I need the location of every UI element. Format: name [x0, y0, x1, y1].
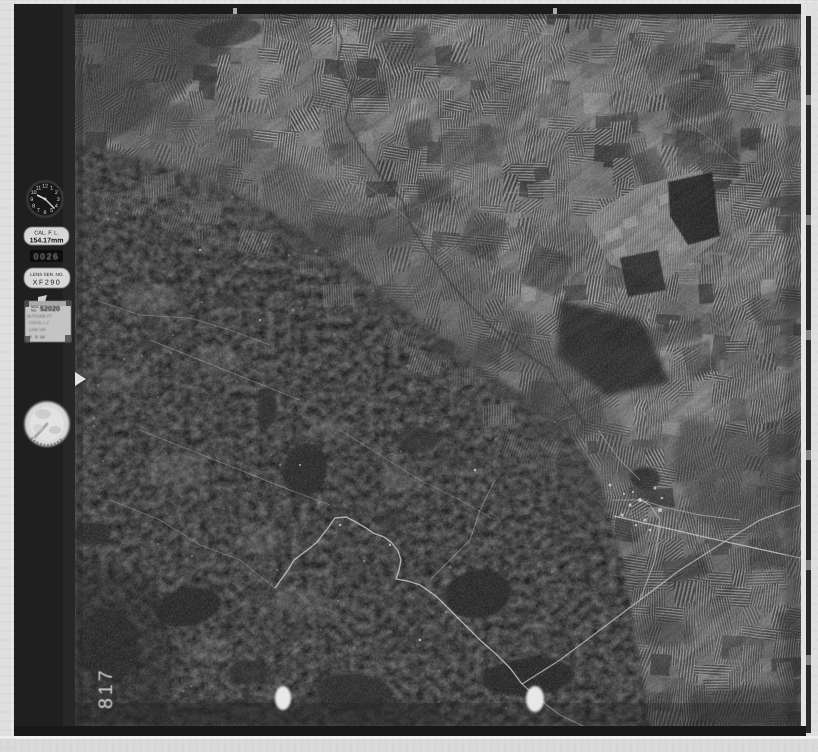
svg-text:154.17mm: 154.17mm [30, 238, 64, 245]
svg-text:8: 8 [32, 203, 35, 209]
svg-text:4: 4 [55, 203, 58, 209]
svg-text:5: 5 [50, 208, 53, 214]
svg-text:1: 1 [50, 185, 53, 191]
svg-text:FOCAL L 2: FOCAL L 2 [29, 320, 49, 325]
svg-text:ALTITUDE FT: ALTITUDE FT [27, 314, 53, 319]
svg-text:9 . 9. 54: 9 . 9. 54 [29, 335, 45, 340]
svg-text:12: 12 [42, 184, 48, 190]
svg-text:LENS SER. NO.: LENS SER. NO. [30, 272, 63, 277]
svg-text:3: 3 [57, 197, 60, 203]
svg-text:NO.: NO. [31, 308, 37, 312]
svg-text:CAL. F. L.: CAL. F. L. [34, 231, 59, 237]
svg-text:9: 9 [30, 197, 33, 203]
svg-text:52020: 52020 [40, 304, 60, 313]
svg-text:CAM 193: CAM 193 [29, 327, 46, 332]
svg-text:XF290: XF290 [33, 280, 62, 287]
svg-text:2: 2 [55, 190, 58, 196]
svg-text:817: 817 [95, 667, 117, 709]
svg-text:6: 6 [44, 210, 47, 216]
svg-text:7: 7 [37, 208, 40, 214]
svg-text:0026: 0026 [33, 252, 59, 262]
svg-text:11: 11 [36, 185, 42, 191]
